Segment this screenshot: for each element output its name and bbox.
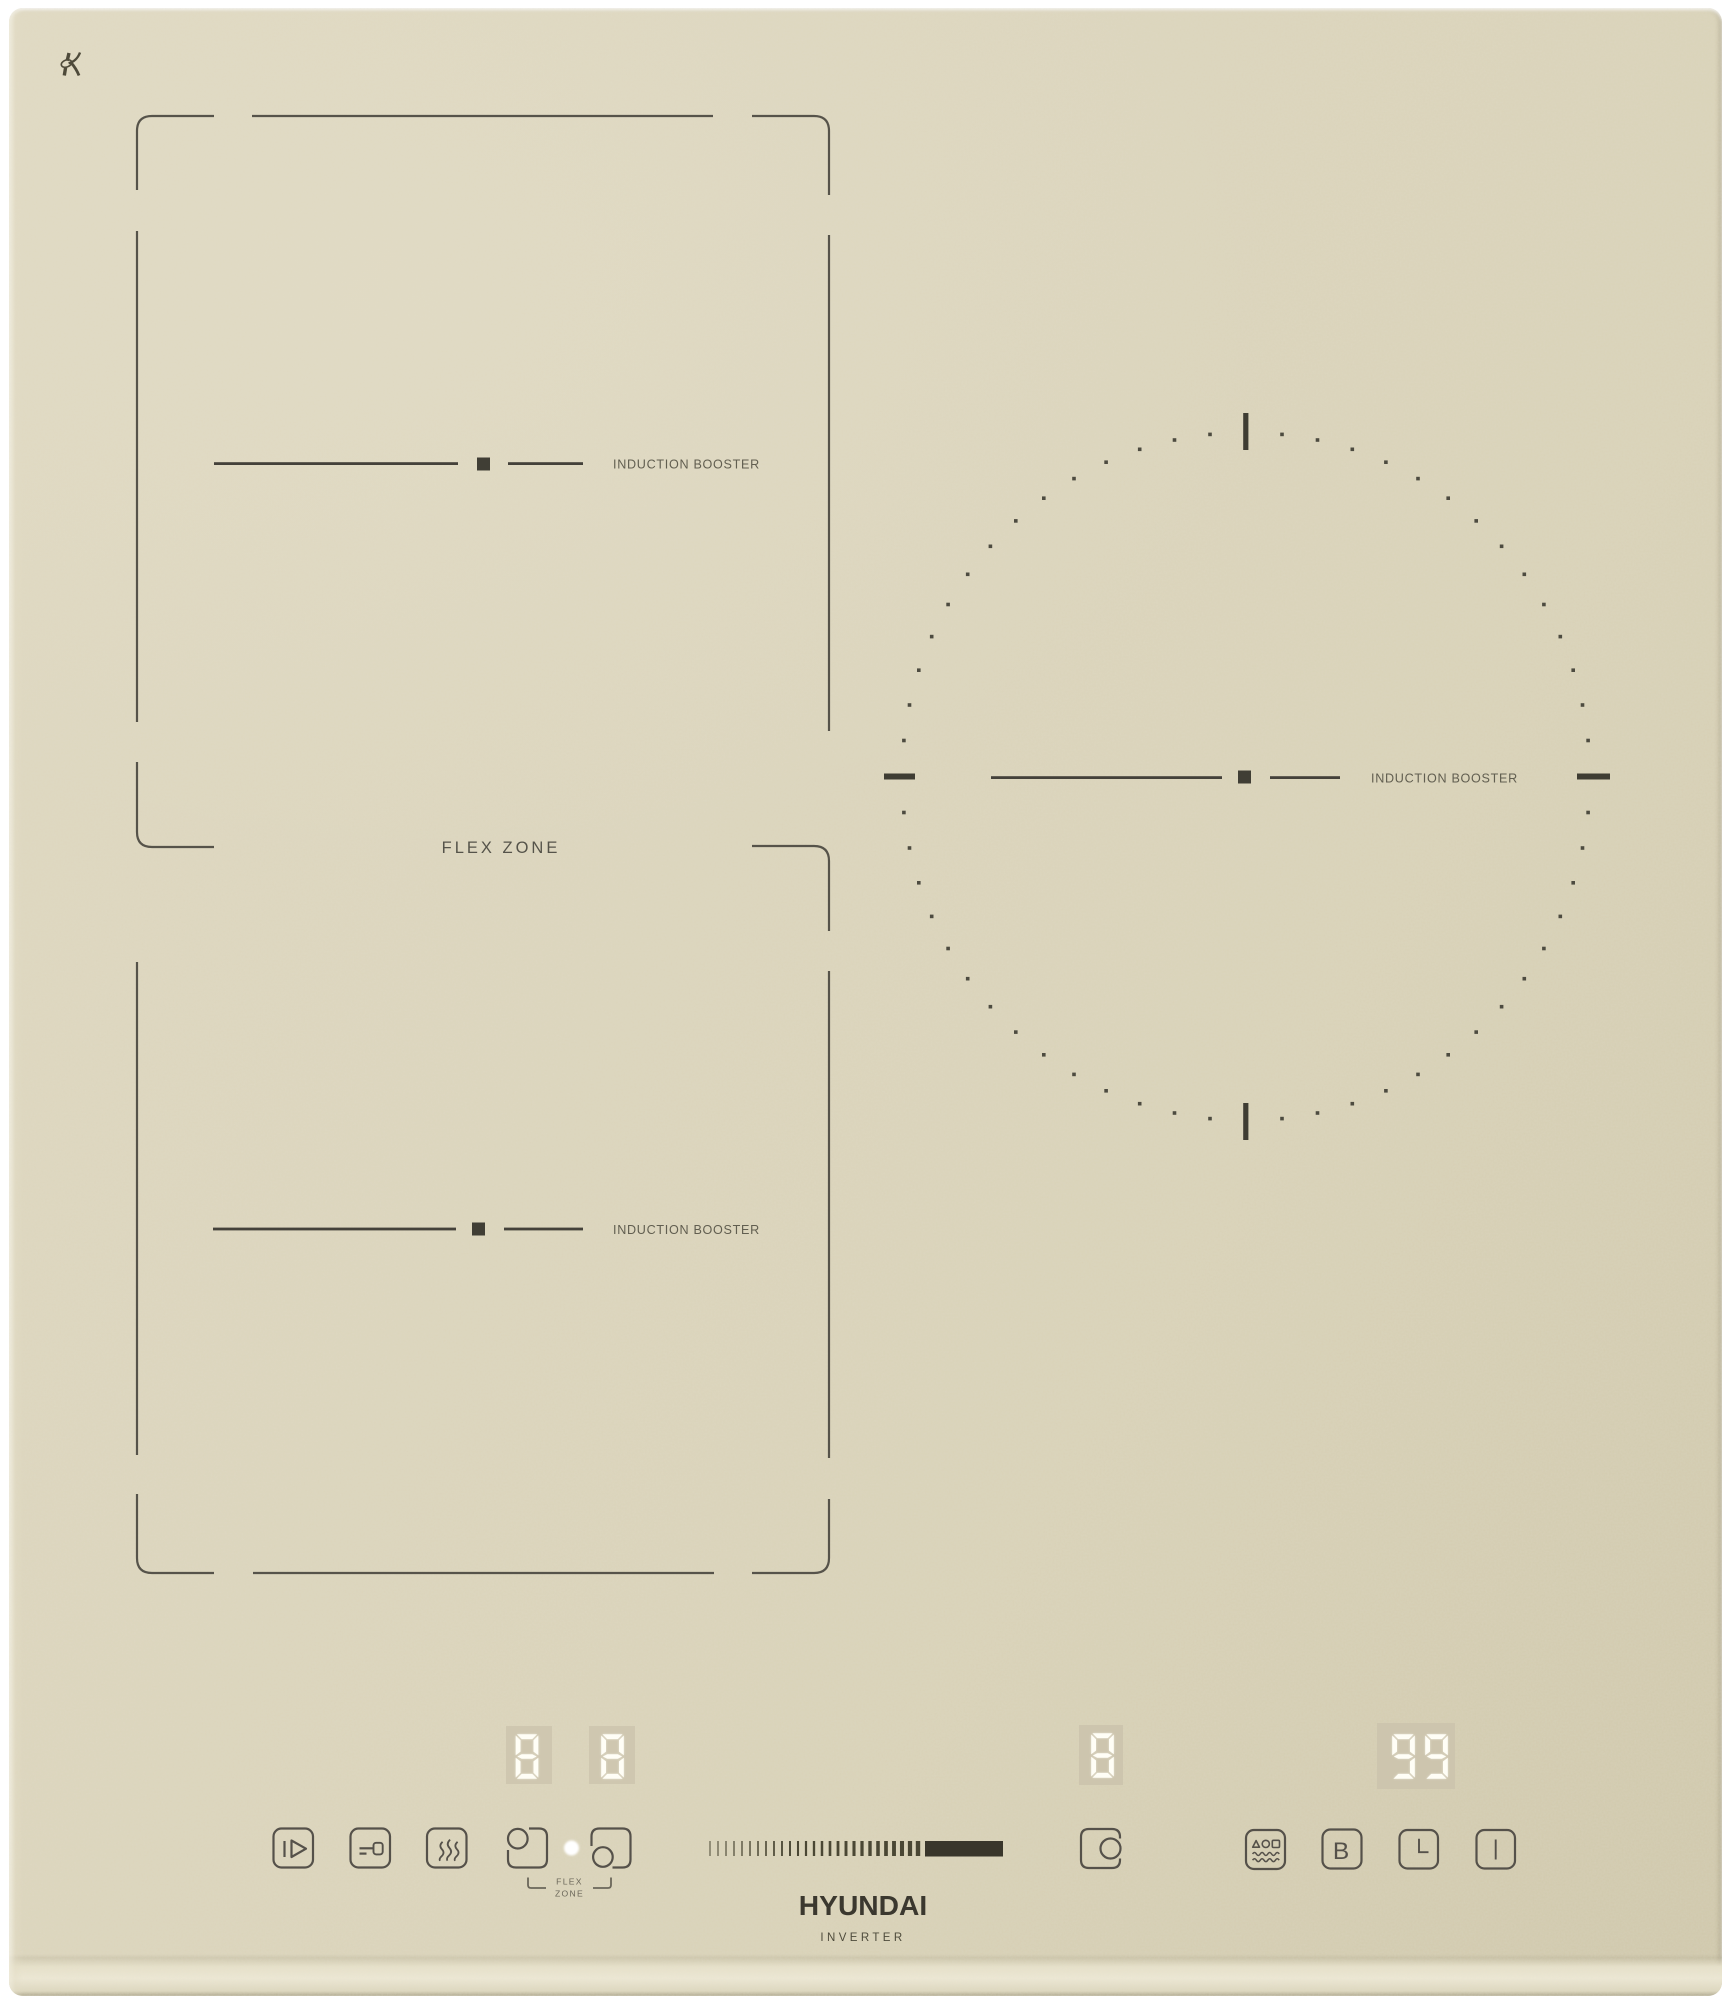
svg-text:B: B <box>1333 1838 1349 1865</box>
svg-text:FLEX: FLEX <box>556 1877 583 1887</box>
svg-text:ZONE: ZONE <box>555 1889 584 1899</box>
svg-text:INDUCTION BOOSTER: INDUCTION BOOSTER <box>1371 772 1518 786</box>
svg-text:INDUCTION BOOSTER: INDUCTION BOOSTER <box>613 458 760 472</box>
svg-text:INVERTER: INVERTER <box>820 1932 905 1944</box>
svg-text:FLEX ZONE: FLEX ZONE <box>442 839 561 857</box>
svg-text:HYUNDAI: HYUNDAI <box>799 1889 927 1921</box>
svg-text:INDUCTION BOOSTER: INDUCTION BOOSTER <box>613 1223 760 1237</box>
